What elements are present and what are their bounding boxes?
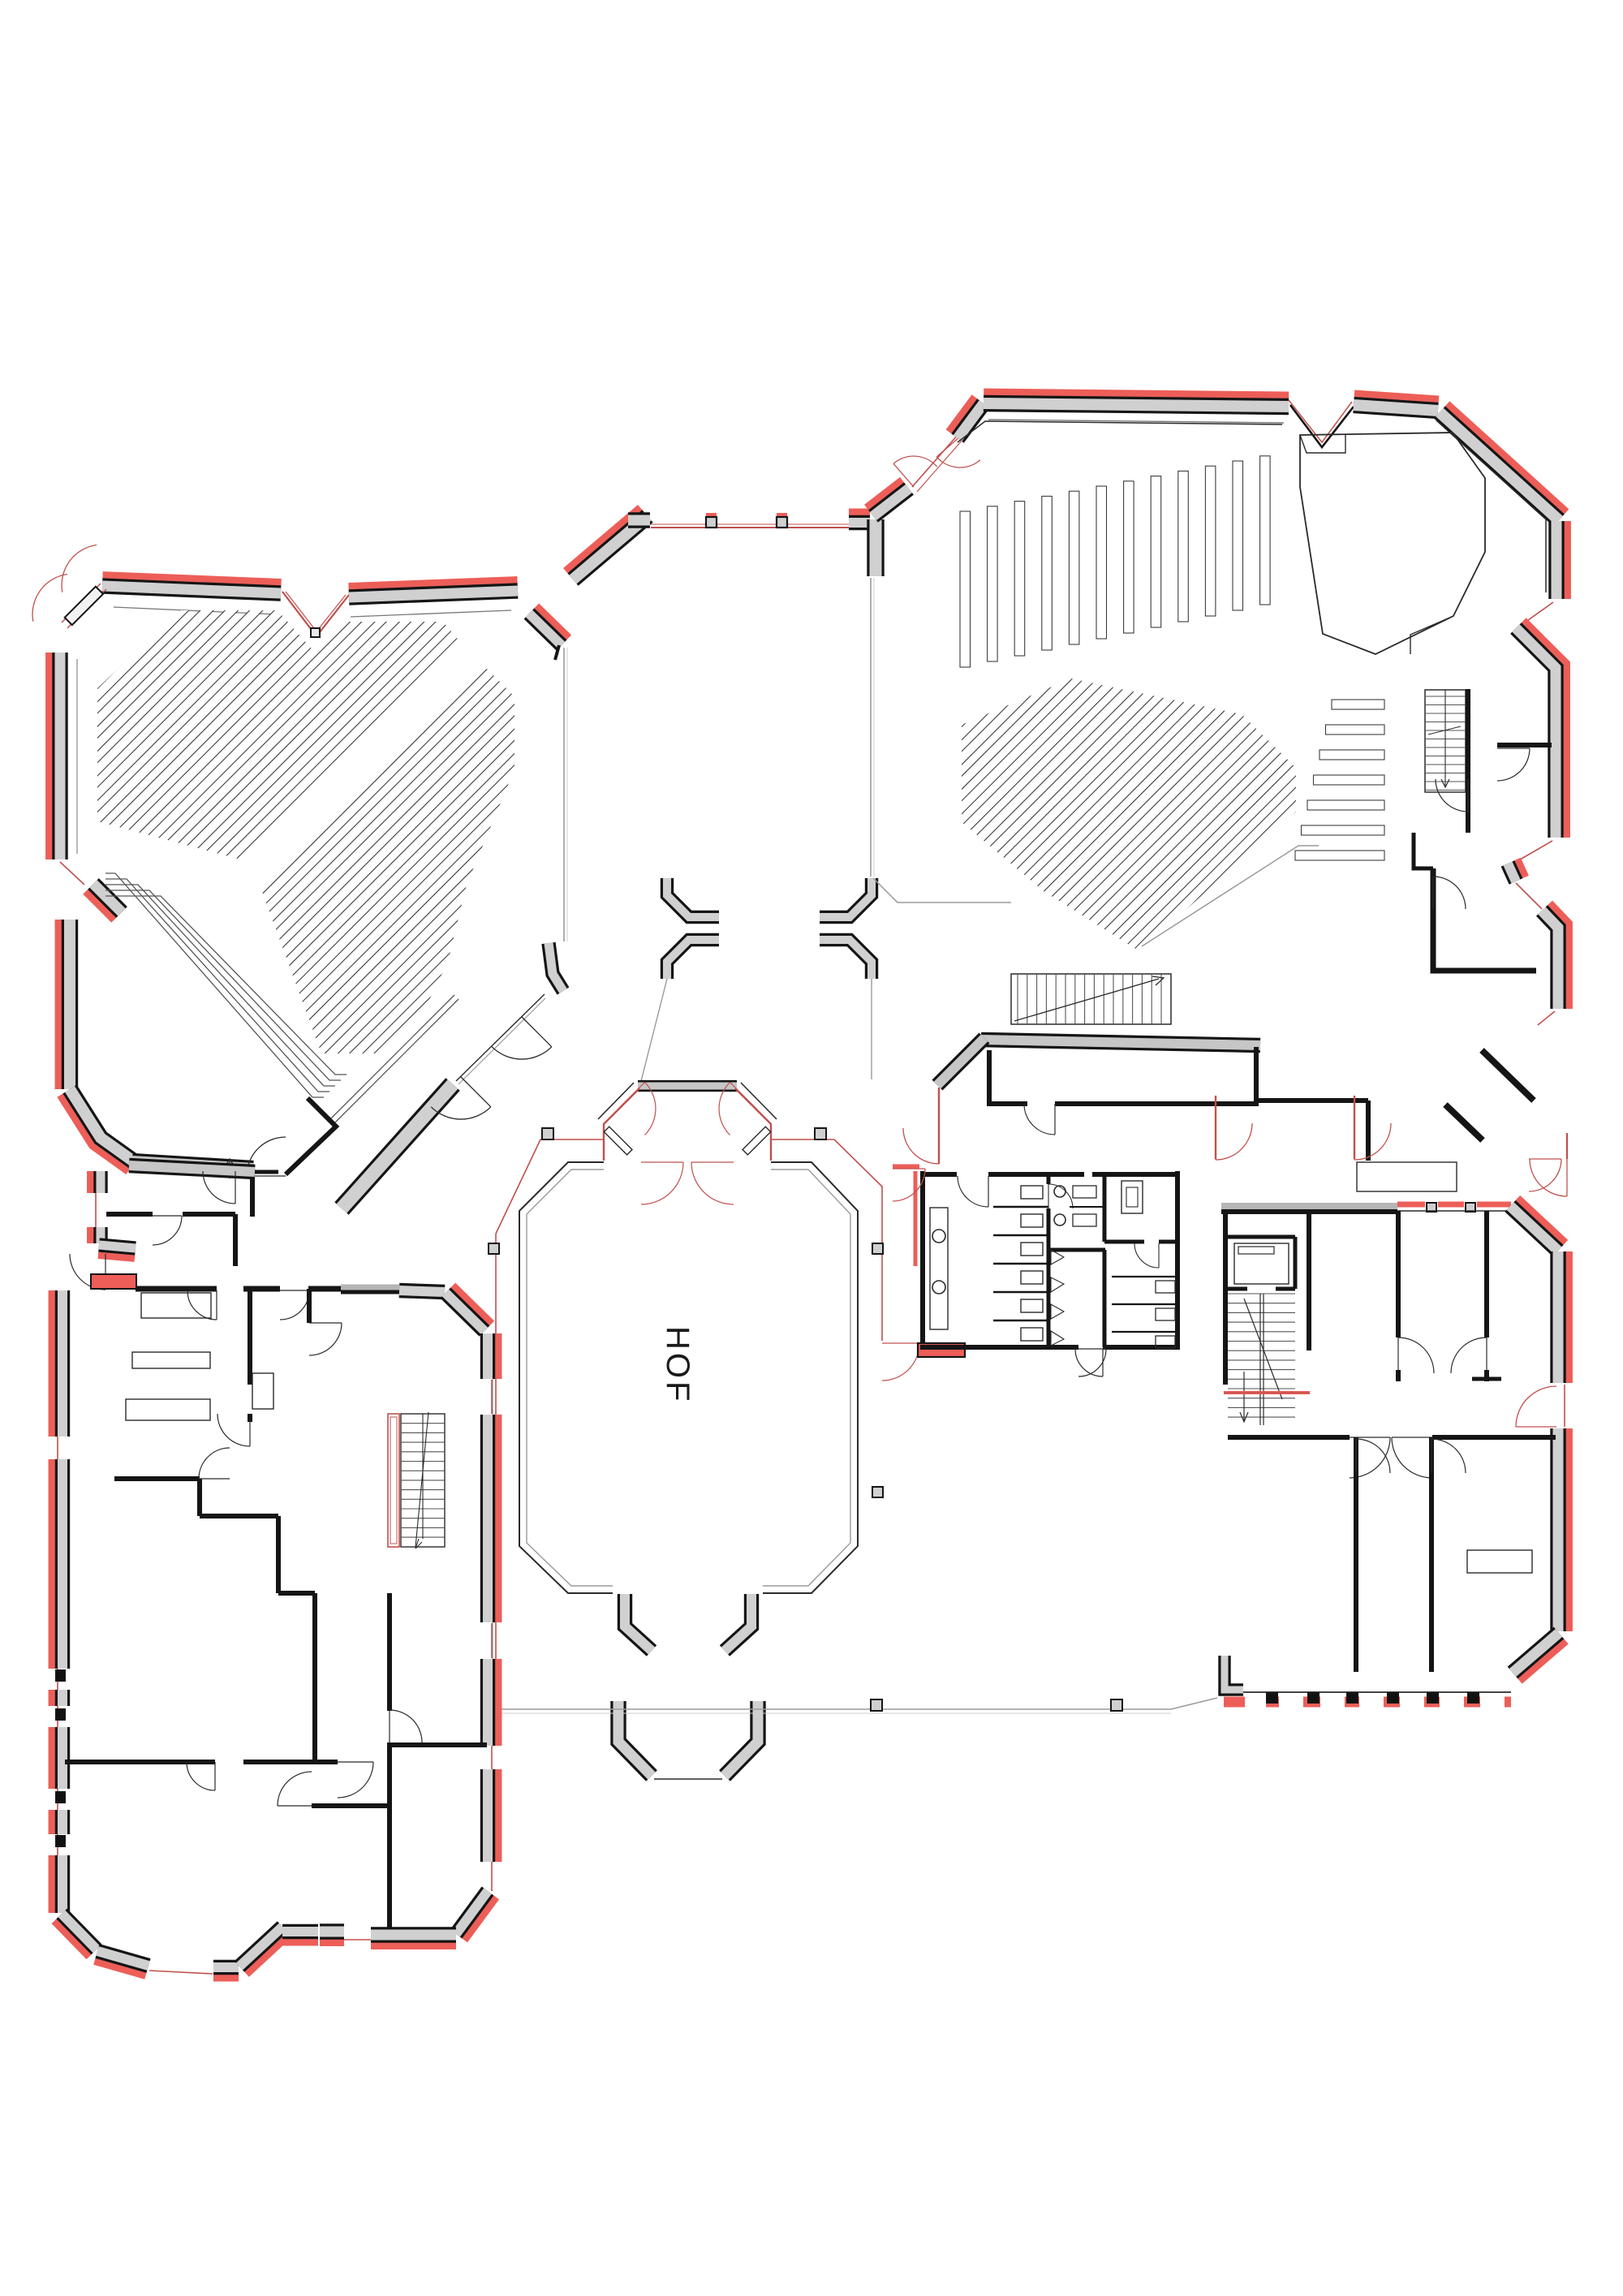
svg-text:HOF: HOF (660, 1326, 695, 1404)
